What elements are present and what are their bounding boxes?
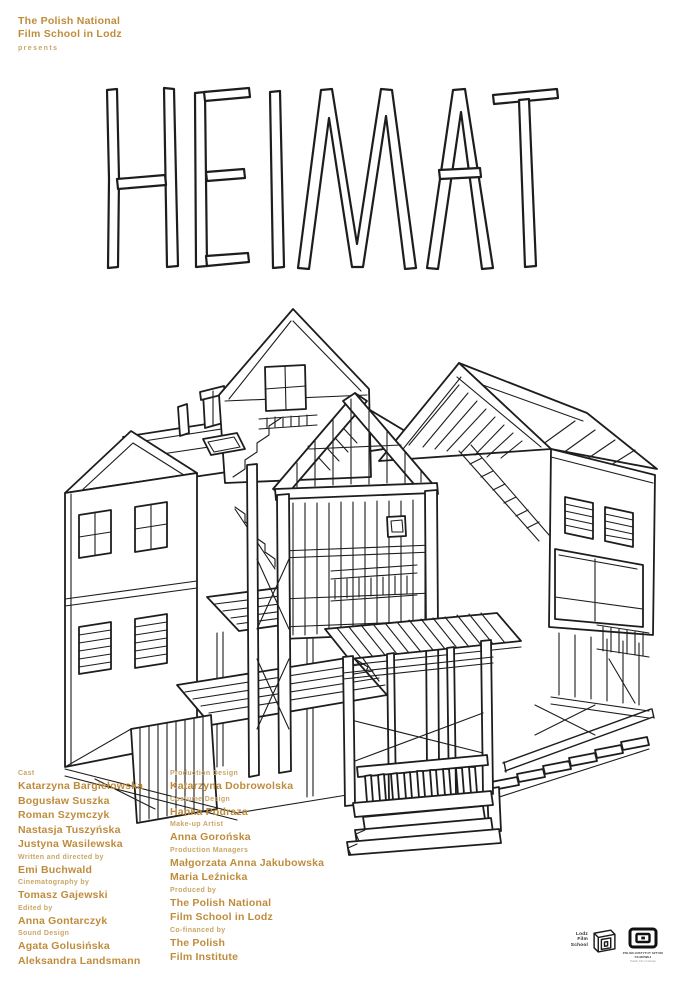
credit-label: Produced by (170, 887, 370, 895)
producer-block: The Polish National Film School in Lodz … (18, 15, 122, 52)
credit-name: Anna Gorońska (170, 830, 370, 845)
lodz-film-school-logo-text: Lodz Film School (558, 932, 588, 948)
credit-name: Maria Leźnicka (170, 870, 370, 885)
credit-label: Written and directed by (18, 854, 178, 862)
credit-name: Justyna Wasilewska (18, 837, 178, 852)
credit-label: Production Design (170, 770, 370, 778)
credit-label: Cinematography by (18, 879, 178, 887)
credit-label: Cast (18, 770, 178, 778)
school-name-line2: Film School in Lodz (18, 28, 122, 41)
credit-name: Tomasz Gajewski (18, 888, 178, 903)
credits-right-column: Production Design Katarzyna Dobrowolska … (170, 770, 370, 965)
credit-label: Co-financed by (170, 927, 370, 935)
credit-name: Roman Szymczyk (18, 808, 178, 823)
credit-name: Bogusław Suszka (18, 794, 178, 809)
credit-section-costume: Costume Design Hanka Podraza (170, 796, 370, 820)
presents-label: presents (18, 45, 122, 52)
pisf-logo-icon (628, 927, 658, 949)
lodz-film-school-logo-icon (591, 926, 618, 953)
credit-name: Film School in Lodz (170, 910, 370, 925)
credit-name: Małgorzata Anna Jakubowska (170, 856, 370, 871)
credits-left-column: Cast Katarzyna Bargiełowska Bogusław Sus… (18, 770, 178, 968)
credit-label: Edited by (18, 905, 178, 913)
credit-section-director: Written and directed by Emi Buchwald (18, 854, 178, 878)
credit-name: Nastasja Tuszyńska (18, 823, 178, 838)
credit-name: Emi Buchwald (18, 863, 178, 878)
credit-section-makeup: Make-up Artist Anna Gorońska (170, 821, 370, 845)
pisf-logo-caption: POLSKI INSTYTUT SZTUKI FILMOWEJ Polish F… (621, 951, 665, 963)
credit-name: Agata Golusińska (18, 939, 178, 954)
credit-label: Sound Design (18, 930, 178, 938)
pisf-caption-line1: POLSKI INSTYTUT SZTUKI FILMOWEJ (621, 951, 665, 959)
credit-section-cinematography: Cinematography by Tomasz Gajewski (18, 879, 178, 903)
school-name-line1: The Polish National (18, 15, 122, 28)
credit-section-production-managers: Production Managers Małgorzata Anna Jaku… (170, 847, 370, 885)
credit-name: The Polish (170, 936, 370, 951)
credit-name: Hanka Podraza (170, 805, 370, 820)
credit-section-cofinanced: Co-financed by The Polish Film Institute (170, 927, 370, 965)
film-poster: The Polish National Film School in Lodz … (0, 0, 683, 985)
film-title (103, 86, 559, 270)
credit-name: Katarzyna Bargiełowska (18, 779, 178, 794)
credit-name: The Polish National (170, 896, 370, 911)
credit-name: Anna Gontarczyk (18, 914, 178, 929)
credit-name: Katarzyna Dobrowolska (170, 779, 370, 794)
credit-name: Aleksandra Landsmann (18, 954, 178, 969)
lodz-logo-line3: School (558, 943, 588, 948)
credit-section-produced-by: Produced by The Polish National Film Sch… (170, 887, 370, 925)
credit-label: Production Managers (170, 847, 370, 855)
credit-section-sound: Sound Design Agata Golusińska Aleksandra… (18, 930, 178, 968)
credit-label: Make-up Artist (170, 821, 370, 829)
credit-name: Film Institute (170, 950, 370, 965)
credit-section-editor: Edited by Anna Gontarczyk (18, 905, 178, 929)
credit-section-cast: Cast Katarzyna Bargiełowska Bogusław Sus… (18, 770, 178, 852)
credit-section-production-design: Production Design Katarzyna Dobrowolska (170, 770, 370, 794)
credit-label: Costume Design (170, 796, 370, 804)
pisf-caption-line2: Polish Film Institute (621, 959, 665, 963)
